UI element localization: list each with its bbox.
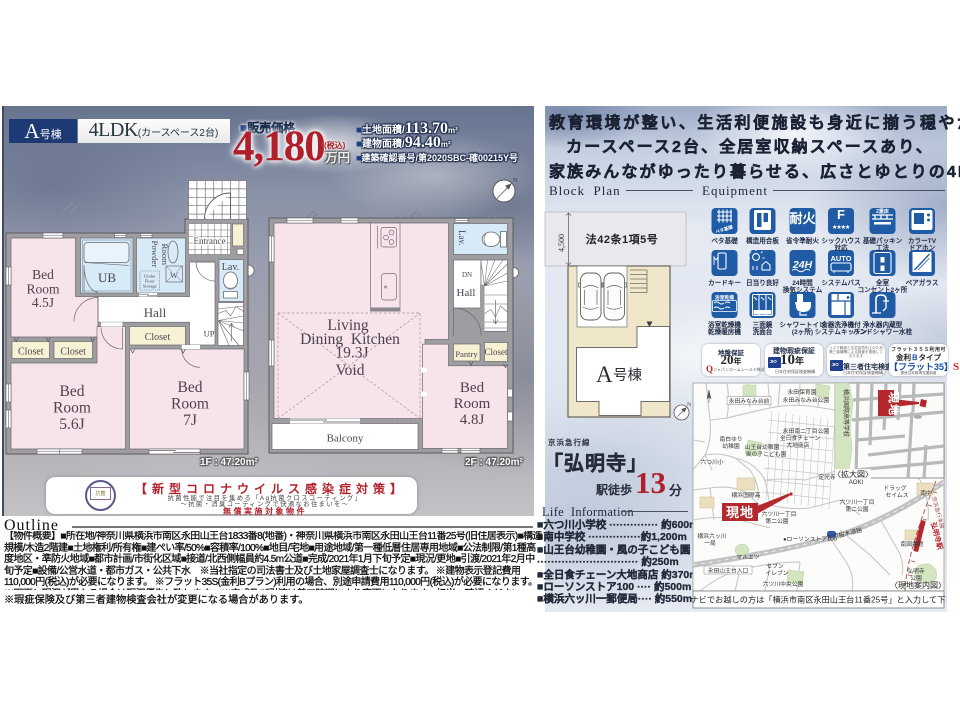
svg-text:Bed: Bed (460, 380, 485, 396)
svg-text:南図書館: 南図書館 (900, 540, 923, 548)
svg-text:Bed: Bed (60, 383, 85, 400)
svg-text:永田みなみ台前: 永田みなみ台前 (729, 397, 770, 405)
svg-text:大地商店: 大地商店 (786, 441, 809, 449)
svg-text:Powder: Powder (150, 241, 160, 268)
svg-text:対応: 対応 (833, 243, 848, 252)
svg-text:Bed: Bed (178, 379, 203, 396)
svg-text:カードキー: カードキー (708, 279, 741, 287)
svg-text:シャワートイレ: シャワートイレ (779, 321, 826, 329)
svg-text:横浜国際高等学校: 横浜国際高等学校 (842, 389, 850, 437)
svg-text:全室: 全室 (875, 278, 890, 287)
svg-text:第二公園: 第二公園 (845, 505, 868, 513)
svg-text:食器洗浄機付: 食器洗浄機付 (821, 320, 861, 329)
svg-text:(2ヶ所): (2ヶ所) (792, 327, 813, 336)
svg-text:コンセント2ヶ所: コンセント2ヶ所 (858, 285, 908, 294)
svg-text:永田山王台入口: 永田山王台入口 (708, 567, 749, 575)
svg-text:システムバス: システムバス (821, 279, 861, 287)
svg-text:永田南二丁目公園: 永田南二丁目公園 (783, 427, 830, 435)
svg-text:全日食チェーン: 全日食チェーン (780, 434, 820, 442)
svg-text:浴室乾燥: 浴室乾燥 (715, 294, 734, 301)
svg-text:ハンドシャワー水栓: ハンドシャワー水栓 (853, 327, 913, 336)
svg-text:AOKI: AOKI (849, 479, 864, 486)
svg-text:Room: Room (171, 396, 209, 413)
svg-text:セブン: セブン (766, 562, 784, 570)
svg-text:4.5J: 4.5J (32, 295, 54, 310)
svg-text:工法: 工法 (876, 243, 890, 252)
svg-text:DN: DN (462, 271, 472, 279)
svg-text:Storage: Storage (143, 284, 157, 289)
svg-text:カラーTV: カラーTV (908, 237, 937, 245)
svg-text:Bed: Bed (32, 267, 54, 282)
svg-text:換気システム: 換気システム (783, 285, 823, 294)
svg-text:Room: Room (53, 400, 91, 417)
svg-text:W: W (170, 270, 178, 280)
svg-text:A: A (596, 362, 613, 387)
svg-text:Entrance: Entrance (194, 236, 226, 246)
svg-text:ペアガラス: ペアガラス (906, 278, 939, 287)
svg-text:Hall: Hall (144, 305, 167, 320)
svg-text:〈拡大図〉: 〈拡大図〉 (833, 469, 873, 479)
svg-text:南中: 南中 (920, 489, 932, 497)
svg-text:一局: 一局 (704, 540, 716, 547)
svg-text:イレブン: イレブン (765, 569, 788, 577)
svg-text:第二公園: 第二公園 (765, 517, 788, 525)
svg-text:ドアホン: ドアホン (909, 244, 936, 252)
svg-text:永田保育園: 永田保育園 (788, 388, 817, 396)
svg-text:7J: 7J (183, 412, 197, 429)
svg-text:AUTO: AUTO (830, 254, 851, 263)
svg-text:セイムス: セイムス (885, 492, 908, 499)
svg-text:山王台幼稚園: 山王台幼稚園 (745, 443, 780, 451)
svg-text:5.6J: 5.6J (59, 416, 84, 433)
svg-text:4,500: 4,500 (557, 234, 566, 252)
svg-text:ベタ基礎: ベタ基礎 (711, 236, 738, 245)
svg-text:Pantry: Pantry (455, 349, 478, 359)
svg-text:Balcony: Balcony (327, 433, 364, 445)
svg-text:法42条1項5号: 法42条1項5号 (586, 232, 658, 246)
svg-text:幼稚園: 幼稚園 (722, 442, 740, 450)
svg-text:カーナビでお越しの方は「横浜市南区永田山王台11番25号」と: カーナビでお越しの方は「横浜市南区永田山王台11番25号」と入力して下さい (690, 595, 947, 605)
svg-text:洗面台: 洗面台 (753, 327, 773, 336)
svg-text:マルエツ: マルエツ (736, 554, 759, 561)
svg-text:六ツ川一丁目: 六ツ川一丁目 (762, 510, 797, 518)
svg-text:浄水器内蔵型: 浄水器内蔵型 (863, 320, 903, 329)
svg-text:六ツ川中央公園: 六ツ川中央公園 (763, 580, 804, 588)
svg-text:Lav.: Lav. (457, 230, 467, 246)
svg-text:Closet: Closet (18, 347, 44, 358)
svg-text:4.8J: 4.8J (460, 412, 485, 428)
svg-text:UP: UP (204, 329, 215, 339)
svg-text:Closet: Closet (145, 332, 171, 343)
svg-text:現地: 現地 (726, 505, 754, 520)
svg-text:Hall: Hall (457, 287, 476, 299)
svg-text:風の子こども園: 風の子こども園 (746, 450, 787, 458)
svg-text:六つ川小: 六つ川小 (700, 458, 723, 466)
svg-text:耐火: 耐火 (789, 211, 816, 226)
svg-text:2重床: 2重床 (876, 208, 890, 215)
svg-text:南白ゆり: 南白ゆり (719, 435, 742, 443)
svg-text:省令準耐火: 省令準耐火 (785, 236, 819, 245)
svg-text:日当り良好: 日当り良好 (746, 278, 779, 287)
svg-text:Closet: Closet (60, 347, 86, 358)
svg-text:浴室乾燥機: 浴室乾燥機 (708, 320, 741, 329)
svg-text:19.3J: 19.3J (335, 345, 368, 362)
svg-text:六ツ川一丁目: 六ツ川一丁目 (840, 498, 875, 506)
svg-text:ドラッグ: ドラッグ (883, 484, 906, 492)
svg-text:Void: Void (335, 362, 364, 379)
svg-text:UB: UB (98, 270, 116, 285)
svg-text:Lav.: Lav. (222, 262, 239, 273)
svg-text:基礎パッキン: 基礎パッキン (863, 236, 903, 245)
svg-text:構造用合板: 構造用合板 (746, 236, 779, 245)
svg-text:24時間: 24時間 (792, 278, 813, 287)
svg-text:三面鏡: 三面鏡 (753, 320, 773, 329)
svg-text:シックハウス: シックハウス (821, 236, 861, 245)
svg-text:乾燥暖房機: 乾燥暖房機 (708, 327, 741, 336)
svg-text:横浜六ッ川: 横浜六ッ川 (698, 532, 727, 540)
svg-text:N: N (513, 177, 518, 184)
svg-text:横浜国際高: 横浜国際高 (732, 491, 761, 499)
svg-text:永田みなみ台公園: 永田みなみ台公園 (783, 396, 830, 404)
svg-text:〈現地案内図〉: 〈現地案内図〉 (890, 580, 946, 590)
svg-text:号棟: 号棟 (613, 367, 642, 384)
svg-text:弘明寺: 弘明寺 (907, 567, 925, 575)
svg-text:Room: Room (454, 396, 491, 412)
svg-text:Room: Room (160, 244, 170, 266)
svg-text:Closet: Closet (484, 347, 508, 357)
svg-text:F: F (837, 207, 845, 222)
svg-text:現地: 現地 (887, 392, 901, 416)
